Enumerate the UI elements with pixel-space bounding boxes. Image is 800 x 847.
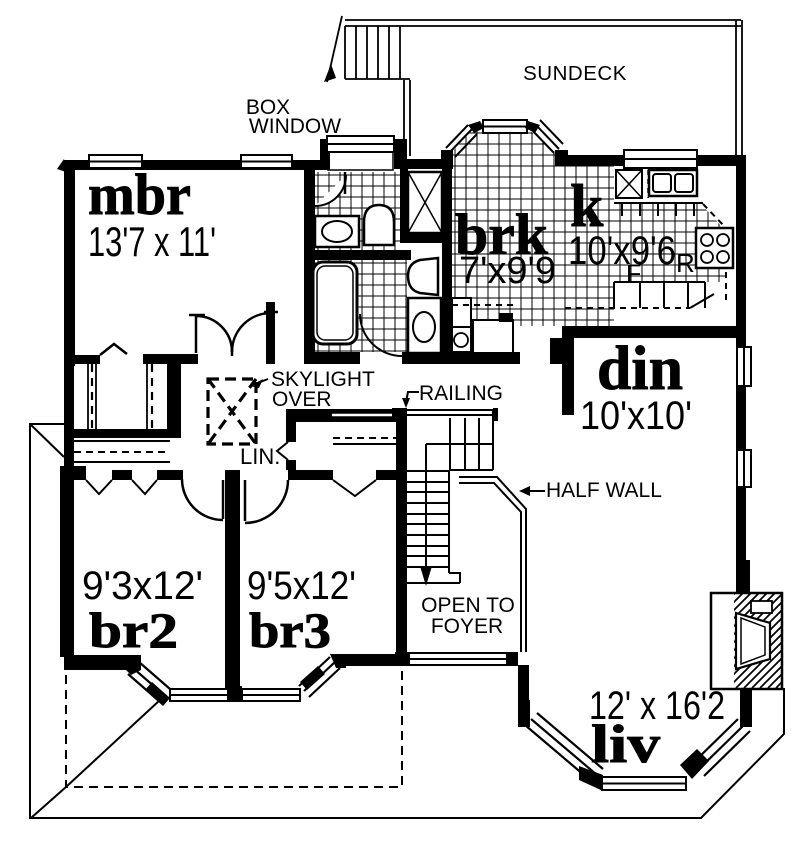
svg-text:HALF WALL: HALF WALL (546, 479, 662, 502)
svg-text:LIN.: LIN. (240, 444, 280, 469)
svg-text:OVER: OVER (272, 388, 332, 411)
svg-text:SUNDECK: SUNDECK (523, 62, 627, 85)
svg-text:din: din (597, 335, 683, 403)
svg-text:liv: liv (591, 714, 660, 774)
svg-text:10'x9'6: 10'x9'6 (568, 229, 676, 273)
svg-text:OPEN TO: OPEN TO (421, 594, 515, 617)
svg-text:RAILING: RAILING (419, 382, 503, 405)
svg-text:R: R (676, 248, 695, 278)
svg-text:br3: br3 (249, 602, 331, 658)
svg-text:10'x10': 10'x10' (580, 394, 692, 438)
svg-text:FOYER: FOYER (431, 615, 503, 638)
svg-text:7'x9'9: 7'x9'9 (459, 250, 556, 292)
svg-text:13'7 x 11': 13'7 x 11' (88, 218, 216, 265)
svg-text:br2: br2 (89, 602, 178, 658)
svg-text:WINDOW: WINDOW (249, 115, 341, 138)
